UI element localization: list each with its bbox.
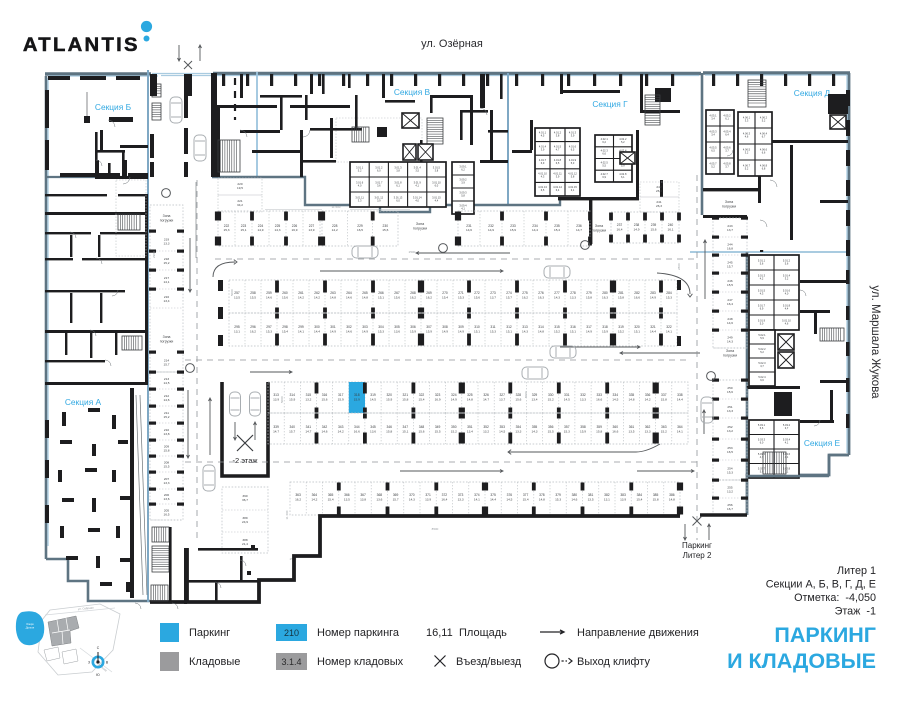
svg-text:231: 231 (466, 224, 472, 228)
svg-text:16,2: 16,2 (250, 329, 256, 333)
svg-text:Выход клифту: Выход клифту (577, 656, 650, 668)
svg-text:Литер 2: Литер 2 (683, 551, 712, 560)
svg-text:13,6: 13,6 (376, 497, 382, 501)
svg-text:6,5: 6,5 (571, 147, 575, 151)
svg-text:260: 260 (282, 291, 288, 295)
svg-text:5000: 5000 (280, 396, 284, 403)
svg-text:301: 301 (330, 325, 336, 329)
svg-text:13,9: 13,9 (273, 397, 279, 401)
svg-text:13,6: 13,6 (370, 429, 376, 433)
svg-text:5,8: 5,8 (461, 194, 465, 198)
svg-text:14,9: 14,9 (362, 329, 368, 333)
svg-text:230: 230 (383, 224, 389, 228)
svg-text:Секция Д: Секция Д (794, 88, 831, 98)
svg-text:14,2: 14,2 (298, 295, 304, 299)
svg-text:330: 330 (548, 393, 554, 397)
svg-text:336: 336 (645, 393, 651, 397)
svg-text:14,8: 14,8 (628, 397, 634, 401)
svg-text:314: 314 (538, 325, 544, 329)
svg-text:238: 238 (634, 223, 640, 227)
svg-text:6,0: 6,0 (396, 198, 400, 202)
svg-text:3,2: 3,2 (785, 276, 789, 280)
svg-text:5,2: 5,2 (762, 119, 766, 123)
svg-text:13,6: 13,6 (394, 329, 400, 333)
svg-text:16,5: 16,5 (727, 450, 733, 454)
svg-text:349: 349 (435, 425, 441, 429)
svg-text:15,9: 15,9 (386, 397, 392, 401)
svg-text:345: 345 (370, 425, 376, 429)
svg-text:295: 295 (234, 325, 240, 329)
svg-text:15,8: 15,8 (661, 397, 667, 401)
svg-text:282: 282 (634, 291, 640, 295)
svg-text:350: 350 (451, 425, 457, 429)
svg-text:13,4: 13,4 (531, 397, 537, 401)
svg-text:14,3: 14,3 (409, 497, 415, 501)
svg-text:13,3: 13,3 (458, 497, 464, 501)
svg-text:15,9: 15,9 (354, 397, 360, 401)
svg-text:6,0: 6,0 (377, 168, 381, 172)
svg-text:16,9: 16,9 (291, 228, 297, 232)
svg-text:3,9: 3,9 (541, 147, 545, 151)
svg-text:14,9: 14,9 (451, 397, 457, 401)
svg-text:13,2: 13,2 (305, 397, 311, 401)
svg-text:14,6: 14,6 (571, 497, 577, 501)
svg-text:15,5: 15,5 (727, 283, 733, 287)
svg-text:305: 305 (394, 325, 400, 329)
svg-text:19,5: 19,5 (237, 186, 243, 190)
svg-text:6,6: 6,6 (602, 152, 606, 156)
svg-text:222: 222 (224, 224, 230, 228)
svg-text:Зона: Зона (163, 214, 171, 218)
svg-text:Секция Е: Секция Е (804, 438, 841, 448)
svg-text:372: 372 (442, 493, 448, 497)
svg-text:4,0: 4,0 (785, 291, 789, 295)
svg-text:15,4: 15,4 (636, 497, 642, 501)
svg-text:15,3: 15,3 (666, 295, 672, 299)
svg-text:15,3: 15,3 (727, 471, 733, 475)
svg-text:14,4: 14,4 (314, 329, 320, 333)
svg-text:15,7: 15,7 (163, 363, 169, 367)
svg-text:306: 306 (410, 325, 416, 329)
svg-text:378: 378 (539, 493, 545, 497)
svg-text:334: 334 (613, 393, 619, 397)
svg-text:3,1: 3,1 (785, 470, 789, 474)
svg-text:6,8: 6,8 (762, 167, 766, 171)
svg-text:15,6: 15,6 (321, 397, 327, 401)
svg-text:14,3: 14,3 (274, 228, 280, 232)
svg-text:15,6: 15,6 (418, 429, 424, 433)
svg-text:6,1: 6,1 (621, 175, 625, 179)
svg-text:3,9: 3,9 (461, 181, 465, 185)
svg-text:15,8: 15,8 (618, 295, 624, 299)
svg-text:14,3: 14,3 (522, 329, 528, 333)
svg-text:15,8: 15,8 (402, 397, 408, 401)
svg-text:4,0: 4,0 (415, 198, 419, 202)
svg-text:14,5: 14,5 (370, 397, 376, 401)
svg-text:357: 357 (564, 425, 570, 429)
svg-text:16,6: 16,6 (354, 429, 360, 433)
svg-text:233: 233 (510, 224, 516, 228)
svg-text:6,9: 6,9 (602, 175, 606, 179)
svg-text:347: 347 (403, 425, 409, 429)
svg-text:3,9: 3,9 (377, 198, 381, 202)
svg-text:265: 265 (362, 291, 368, 295)
svg-text:16,2: 16,2 (522, 295, 528, 299)
svg-text:Зона: Зона (726, 349, 734, 353)
svg-text:356: 356 (548, 425, 554, 429)
svg-text:360: 360 (613, 425, 619, 429)
svg-text:Секция А: Секция А (65, 397, 102, 407)
svg-text:Секции А, Б, В, Г, Д, Е: Секции А, Б, В, Г, Д, Е (766, 579, 876, 591)
svg-text:326: 326 (483, 393, 489, 397)
svg-text:310: 310 (474, 325, 480, 329)
svg-text:14,6: 14,6 (266, 295, 272, 299)
svg-text:13,3: 13,3 (163, 242, 169, 246)
svg-text:15,1: 15,1 (402, 429, 408, 433)
svg-text:16,6: 16,6 (612, 429, 618, 433)
svg-text:4,7: 4,7 (556, 147, 560, 151)
svg-text:15,3: 15,3 (490, 329, 496, 333)
svg-text:15,5: 15,5 (163, 465, 169, 469)
svg-text:13,9: 13,9 (620, 497, 626, 501)
svg-text:363: 363 (661, 425, 667, 429)
svg-text:16,2: 16,2 (426, 295, 432, 299)
svg-text:15,3: 15,3 (458, 295, 464, 299)
svg-text:Долгое: Долгое (26, 626, 35, 630)
svg-text:13,5: 13,5 (588, 497, 594, 501)
svg-text:4,6: 4,6 (745, 135, 749, 139)
svg-text:Зона: Зона (163, 335, 171, 339)
svg-text:14,4: 14,4 (532, 228, 538, 232)
svg-text:16,5: 16,5 (357, 228, 363, 232)
svg-text:5,2: 5,2 (745, 167, 749, 171)
svg-text:15,2: 15,2 (618, 329, 624, 333)
svg-text:6,2: 6,2 (461, 168, 465, 172)
svg-text:14,1: 14,1 (474, 497, 480, 501)
svg-text:Въезд/выезд: Въезд/выезд (456, 656, 522, 668)
svg-text:6,5: 6,5 (711, 149, 715, 153)
svg-text:3,3: 3,3 (358, 198, 362, 202)
svg-text:Зона: Зона (416, 222, 424, 226)
svg-text:15,9: 15,9 (426, 329, 432, 333)
svg-text:13,8: 13,8 (360, 497, 366, 501)
svg-text:6,9: 6,9 (541, 161, 545, 165)
svg-text:36,7: 36,7 (242, 498, 248, 502)
svg-text:13,3: 13,3 (580, 397, 586, 401)
svg-text:Секция В: Секция В (394, 87, 431, 97)
svg-text:351: 351 (467, 425, 473, 429)
svg-text:13,5: 13,5 (628, 429, 634, 433)
svg-text:Отметка: -4,050: Отметка: -4,050 (794, 592, 876, 604)
svg-text:15,8: 15,8 (386, 429, 392, 433)
svg-text:15,1: 15,1 (474, 329, 480, 333)
svg-text:15,4: 15,4 (442, 295, 448, 299)
svg-text:16,7: 16,7 (727, 507, 733, 511)
svg-text:-2 этаж: -2 этаж (233, 456, 258, 465)
svg-text:14,2: 14,2 (332, 228, 338, 232)
svg-text:15,8: 15,8 (163, 449, 169, 453)
svg-text:3,4: 3,4 (711, 133, 715, 137)
svg-text:15,3: 15,3 (223, 228, 229, 232)
svg-text:355: 355 (532, 425, 538, 429)
svg-text:227: 227 (309, 224, 315, 228)
svg-text:224: 224 (258, 224, 264, 228)
svg-text:314: 314 (289, 393, 295, 397)
svg-text:погрузки: погрузки (722, 205, 736, 209)
svg-text:14,1: 14,1 (666, 329, 672, 333)
svg-text:4,4: 4,4 (435, 198, 439, 202)
svg-text:317: 317 (338, 393, 344, 397)
svg-text:8500: 8500 (432, 527, 439, 531)
svg-text:14,9: 14,9 (458, 329, 464, 333)
svg-text:Зона: Зона (725, 200, 733, 204)
svg-text:210: 210 (284, 628, 299, 638)
svg-text:15,9: 15,9 (289, 397, 295, 401)
svg-text:236: 236 (576, 224, 582, 228)
svg-text:235: 235 (554, 224, 560, 228)
svg-text:281: 281 (618, 291, 624, 295)
svg-text:240: 240 (668, 223, 674, 227)
svg-text:353: 353 (499, 425, 505, 429)
svg-text:14,9: 14,9 (330, 329, 336, 333)
svg-text:298: 298 (282, 325, 288, 329)
svg-text:3,7: 3,7 (725, 149, 729, 153)
svg-text:15,2: 15,2 (548, 397, 554, 401)
svg-text:14,7: 14,7 (576, 228, 582, 232)
svg-text:283: 283 (650, 291, 656, 295)
svg-text:16,1: 16,1 (667, 227, 673, 231)
svg-text:13,1: 13,1 (604, 497, 610, 501)
svg-text:15,1: 15,1 (634, 329, 640, 333)
svg-text:280: 280 (602, 291, 608, 295)
svg-text:4,3: 4,3 (760, 291, 764, 295)
svg-text:226: 226 (292, 224, 298, 228)
svg-text:318: 318 (354, 393, 360, 397)
svg-text:5,2: 5,2 (711, 165, 715, 169)
svg-text:333: 333 (596, 393, 602, 397)
svg-text:6,7: 6,7 (762, 135, 766, 139)
svg-text:364: 364 (312, 493, 318, 497)
svg-text:296: 296 (250, 325, 256, 329)
svg-text:279: 279 (586, 291, 592, 295)
svg-text:6,5: 6,5 (556, 161, 560, 165)
svg-text:312: 312 (506, 325, 512, 329)
svg-text:4,0: 4,0 (358, 183, 362, 187)
svg-text:6,1: 6,1 (396, 183, 400, 187)
svg-text:погрузки: погрузки (592, 229, 606, 233)
svg-text:15,4: 15,4 (523, 497, 529, 501)
svg-text:21,4: 21,4 (242, 542, 248, 546)
svg-text:14,9: 14,9 (442, 329, 448, 333)
svg-text:15,7: 15,7 (727, 265, 733, 269)
svg-text:15,6: 15,6 (382, 228, 388, 232)
svg-text:342: 342 (322, 425, 328, 429)
svg-text:15,2: 15,2 (554, 329, 560, 333)
svg-text:4,5: 4,5 (541, 134, 545, 138)
svg-text:6,0: 6,0 (435, 183, 439, 187)
svg-text:Озеро: Озеро (26, 622, 34, 626)
svg-text:15,5: 15,5 (435, 429, 441, 433)
svg-text:275: 275 (522, 291, 528, 295)
svg-text:3,4: 3,4 (711, 117, 715, 121)
svg-text:13,2: 13,2 (727, 429, 733, 433)
svg-text:335: 335 (629, 393, 635, 397)
svg-text:344: 344 (354, 425, 360, 429)
svg-text:319: 319 (618, 325, 624, 329)
svg-text:384: 384 (637, 493, 643, 497)
svg-text:15,1: 15,1 (506, 329, 512, 333)
svg-text:16,2: 16,2 (295, 497, 301, 501)
svg-text:3,9: 3,9 (571, 134, 575, 138)
svg-text:284: 284 (666, 291, 672, 295)
svg-text:6,9: 6,9 (760, 306, 764, 310)
svg-text:270: 270 (442, 291, 448, 295)
svg-text:352: 352 (483, 425, 489, 429)
svg-text:264: 264 (346, 291, 352, 295)
svg-text:381: 381 (588, 493, 594, 497)
svg-text:322: 322 (419, 393, 425, 397)
svg-text:14,2: 14,2 (314, 295, 320, 299)
svg-text:15,1: 15,1 (240, 228, 246, 232)
svg-text:14,8: 14,8 (538, 329, 544, 333)
svg-text:16,5: 16,5 (163, 513, 169, 517)
svg-text:4,6: 4,6 (785, 321, 789, 325)
svg-text:385: 385 (653, 493, 659, 497)
svg-text:Направление движения: Направление движения (577, 627, 699, 639)
svg-text:Секция Б: Секция Б (95, 102, 132, 112)
svg-text:Этаж -1: Этаж -1 (835, 606, 876, 618)
svg-text:15,6: 15,6 (650, 227, 656, 231)
svg-text:4,1: 4,1 (415, 183, 419, 187)
svg-text:329: 329 (532, 393, 538, 397)
svg-text:338: 338 (677, 393, 683, 397)
svg-text:З: З (88, 661, 90, 665)
svg-text:2800: 2800 (677, 263, 681, 270)
svg-text:14,7: 14,7 (305, 429, 311, 433)
svg-text:375: 375 (490, 493, 496, 497)
svg-text:14,6: 14,6 (466, 228, 472, 232)
svg-text:15,8: 15,8 (653, 497, 659, 501)
svg-text:Кладовые: Кладовые (189, 656, 240, 668)
svg-text:5,6: 5,6 (785, 261, 789, 265)
svg-text:370: 370 (409, 493, 415, 497)
svg-text:15,9: 15,9 (580, 429, 586, 433)
svg-text:302: 302 (346, 325, 352, 329)
svg-text:332: 332 (580, 393, 586, 397)
svg-text:368: 368 (377, 493, 383, 497)
svg-text:14,2: 14,2 (645, 397, 651, 401)
svg-text:14,1: 14,1 (298, 329, 304, 333)
svg-text:259: 259 (266, 291, 272, 295)
svg-text:14,2: 14,2 (338, 429, 344, 433)
svg-text:13,6: 13,6 (163, 497, 169, 501)
svg-text:14,7: 14,7 (273, 429, 279, 433)
svg-text:15,2: 15,2 (451, 429, 457, 433)
svg-text:15,8: 15,8 (586, 295, 592, 299)
svg-text:315: 315 (306, 393, 312, 397)
svg-text:276: 276 (538, 291, 544, 295)
svg-text:4,1: 4,1 (461, 207, 465, 211)
svg-text:5,3: 5,3 (571, 161, 575, 165)
svg-text:14,6: 14,6 (163, 398, 169, 402)
svg-text:262: 262 (314, 291, 320, 295)
svg-text:14,9: 14,9 (488, 228, 494, 232)
svg-text:229: 229 (357, 224, 363, 228)
svg-text:328: 328 (516, 393, 522, 397)
svg-text:257: 257 (234, 291, 240, 295)
svg-text:15,3: 15,3 (378, 329, 384, 333)
svg-text:Номер паркинга: Номер паркинга (317, 627, 400, 639)
svg-text:16,6: 16,6 (596, 397, 602, 401)
svg-text:14,3: 14,3 (727, 340, 733, 344)
svg-text:13,2: 13,2 (727, 490, 733, 494)
svg-text:13,4: 13,4 (467, 429, 473, 433)
svg-text:13,3: 13,3 (645, 429, 651, 433)
svg-text:6,6: 6,6 (760, 378, 764, 382)
svg-text:14,5: 14,5 (564, 397, 570, 401)
svg-text:321: 321 (650, 325, 656, 329)
svg-text:362: 362 (645, 425, 651, 429)
svg-text:15,5: 15,5 (548, 429, 554, 433)
svg-text:ул. Озёрная: ул. Озёрная (421, 38, 483, 50)
svg-text:303: 303 (362, 325, 368, 329)
svg-text:14,6: 14,6 (346, 295, 352, 299)
svg-text:4,3: 4,3 (541, 175, 545, 179)
svg-text:267: 267 (394, 291, 400, 295)
svg-text:5,0: 5,0 (760, 321, 764, 325)
svg-text:3,5: 3,5 (415, 168, 419, 172)
svg-text:15,6: 15,6 (515, 397, 521, 401)
svg-text:Ю: Ю (96, 673, 100, 677)
svg-text:16,9: 16,9 (435, 397, 441, 401)
svg-text:6,5: 6,5 (541, 188, 545, 192)
svg-text:365: 365 (328, 493, 334, 497)
svg-text:Секция Г: Секция Г (592, 99, 628, 109)
svg-text:14,8: 14,8 (669, 497, 675, 501)
svg-text:ATLANTIS: ATLANTIS (23, 34, 140, 56)
svg-text:4,4: 4,4 (785, 306, 789, 310)
svg-text:13,7: 13,7 (499, 397, 505, 401)
svg-text:317: 317 (586, 325, 592, 329)
svg-text:4,1: 4,1 (785, 455, 789, 459)
svg-text:228: 228 (332, 224, 338, 228)
svg-text:24,9: 24,9 (242, 520, 248, 524)
svg-text:15,6: 15,6 (727, 390, 733, 394)
svg-text:16,11: 16,11 (426, 627, 453, 639)
svg-text:5,9: 5,9 (760, 336, 764, 340)
svg-text:322: 322 (666, 325, 672, 329)
svg-text:263: 263 (330, 291, 336, 295)
svg-text:373: 373 (458, 493, 464, 497)
svg-text:15,2: 15,2 (163, 415, 169, 419)
svg-text:234: 234 (532, 224, 538, 228)
svg-text:ул. Маршала Жукова: ул. Маршала Жукова (869, 285, 881, 399)
svg-text:3,8: 3,8 (396, 168, 400, 172)
svg-text:13,3: 13,3 (727, 409, 733, 413)
svg-text:26,3: 26,3 (656, 189, 662, 193)
svg-text:382: 382 (604, 493, 610, 497)
svg-text:354: 354 (516, 425, 522, 429)
svg-text:6,4: 6,4 (556, 188, 560, 192)
svg-text:14,4: 14,4 (677, 397, 683, 401)
svg-text:Номер кладовых: Номер кладовых (317, 656, 404, 668)
svg-text:11 600: 11 600 (285, 510, 289, 519)
svg-text:309: 309 (458, 325, 464, 329)
svg-text:225: 225 (275, 224, 281, 228)
svg-text:377: 377 (523, 493, 529, 497)
svg-text:366: 366 (344, 493, 350, 497)
svg-text:16,4: 16,4 (727, 302, 733, 306)
